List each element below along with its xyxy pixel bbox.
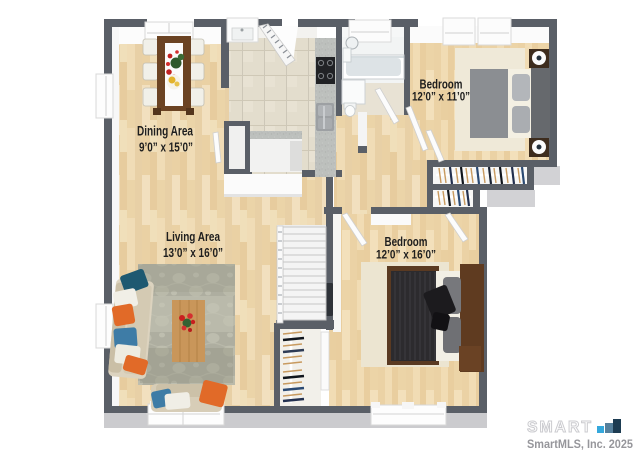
svg-text:SmartMLS, Inc. 2025: SmartMLS, Inc. 2025	[527, 437, 633, 451]
svg-text:12’0” x 16’0”: 12’0” x 16’0”	[376, 248, 436, 262]
svg-text:13’0” x 16’0”: 13’0” x 16’0”	[163, 246, 223, 260]
svg-text:SMART: SMART	[527, 419, 593, 436]
svg-text:Living Area: Living Area	[166, 230, 221, 244]
svg-text:12’0” x 11’0”: 12’0” x 11’0”	[412, 90, 470, 104]
svg-text:Dining Area: Dining Area	[137, 124, 193, 139]
svg-text:9’0” x 15’0”: 9’0” x 15’0”	[139, 140, 193, 155]
